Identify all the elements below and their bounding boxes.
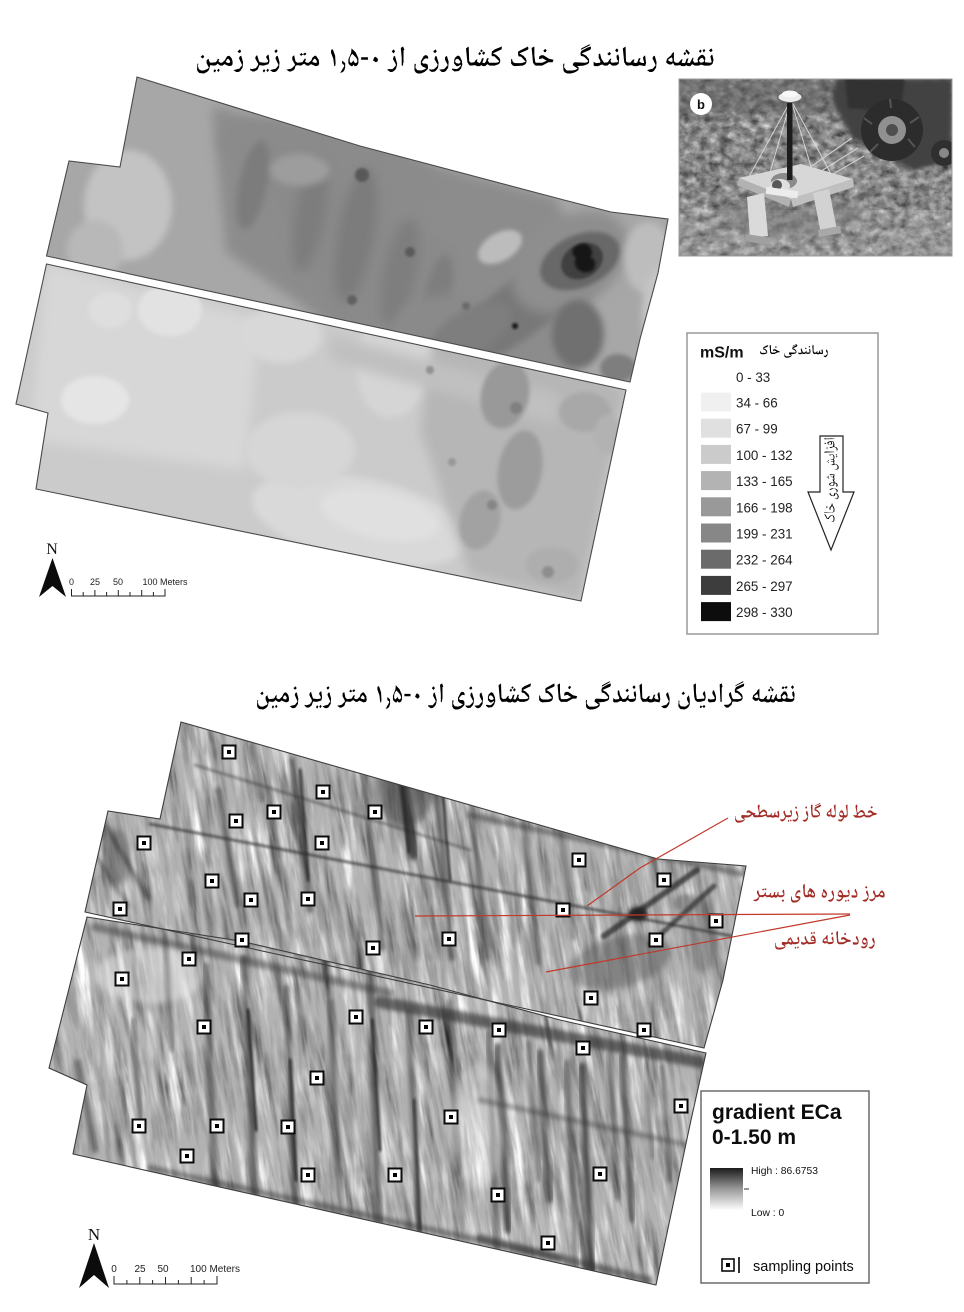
svg-text:25: 25 bbox=[134, 1264, 146, 1275]
svg-text:232 - 264: 232 - 264 bbox=[736, 553, 793, 568]
svg-text:N: N bbox=[88, 1225, 100, 1244]
svg-text:265 - 297: 265 - 297 bbox=[736, 579, 793, 594]
svg-text:N: N bbox=[46, 541, 58, 558]
svg-text:0 - 33: 0 - 33 bbox=[736, 370, 770, 385]
svg-text:High : 86.6753: High : 86.6753 bbox=[751, 1166, 818, 1177]
svg-text:100 Meters: 100 Meters bbox=[142, 577, 188, 587]
svg-text:34 - 66: 34 - 66 bbox=[736, 396, 778, 411]
svg-text:25: 25 bbox=[90, 577, 100, 587]
svg-text:b: b bbox=[697, 97, 705, 112]
svg-text:133 - 165: 133 - 165 bbox=[736, 474, 793, 489]
svg-text:199 - 231: 199 - 231 bbox=[736, 527, 793, 542]
svg-text:gradient ECa: gradient ECa bbox=[712, 1101, 842, 1124]
svg-text:100 Meters: 100 Meters bbox=[190, 1264, 240, 1275]
svg-text:Low : 0: Low : 0 bbox=[751, 1208, 784, 1219]
svg-text:sampling points: sampling points bbox=[753, 1259, 854, 1275]
svg-text:67 - 99: 67 - 99 bbox=[736, 422, 778, 437]
svg-text:0: 0 bbox=[111, 1264, 117, 1275]
svg-text:298 - 330: 298 - 330 bbox=[736, 605, 793, 620]
svg-text:50: 50 bbox=[113, 577, 123, 587]
svg-text:50: 50 bbox=[157, 1264, 169, 1275]
svg-text:166 - 198: 166 - 198 bbox=[736, 500, 793, 515]
svg-text:mS/m: mS/m bbox=[700, 345, 744, 362]
svg-text:0-1.50 m: 0-1.50 m bbox=[712, 1126, 796, 1149]
svg-text:0: 0 bbox=[69, 577, 74, 587]
svg-text:100 - 132: 100 - 132 bbox=[736, 448, 793, 463]
